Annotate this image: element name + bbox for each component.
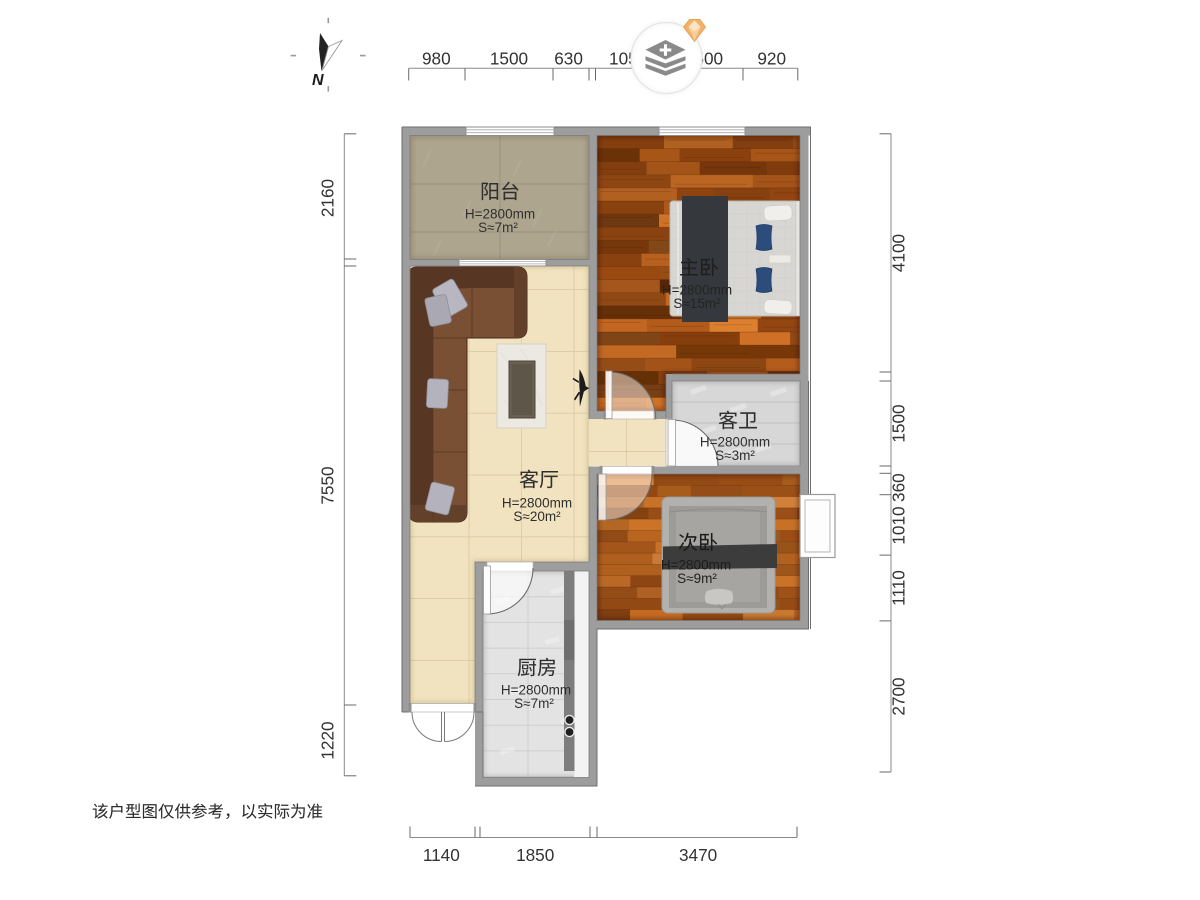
svg-text:1140: 1140	[423, 845, 460, 865]
svg-text:S≈15m²: S≈15m²	[673, 296, 721, 311]
svg-text:S≈7m²: S≈7m²	[514, 696, 554, 711]
svg-text:360: 360	[889, 473, 909, 502]
svg-text:630: 630	[554, 49, 583, 69]
svg-text:4100: 4100	[889, 234, 909, 272]
svg-text:980: 980	[422, 49, 451, 69]
svg-text:1110: 1110	[889, 570, 909, 606]
svg-text:920: 920	[757, 49, 786, 69]
svg-text:2160: 2160	[318, 179, 338, 217]
svg-text:S≈7m²: S≈7m²	[478, 220, 518, 235]
svg-text:S≈3m²: S≈3m²	[715, 448, 755, 463]
svg-text:1850: 1850	[516, 845, 554, 865]
svg-text:1500: 1500	[889, 404, 909, 442]
svg-text:7550: 7550	[318, 466, 338, 504]
svg-text:N: N	[312, 72, 324, 89]
svg-text:3470: 3470	[679, 845, 717, 865]
svg-text:2700: 2700	[889, 677, 909, 715]
svg-text:1010: 1010	[889, 506, 909, 544]
svg-text:S≈9m²: S≈9m²	[677, 571, 717, 586]
svg-text:1220: 1220	[318, 721, 338, 759]
svg-text:S≈20m²: S≈20m²	[513, 509, 561, 524]
svg-text:1500: 1500	[490, 49, 528, 69]
